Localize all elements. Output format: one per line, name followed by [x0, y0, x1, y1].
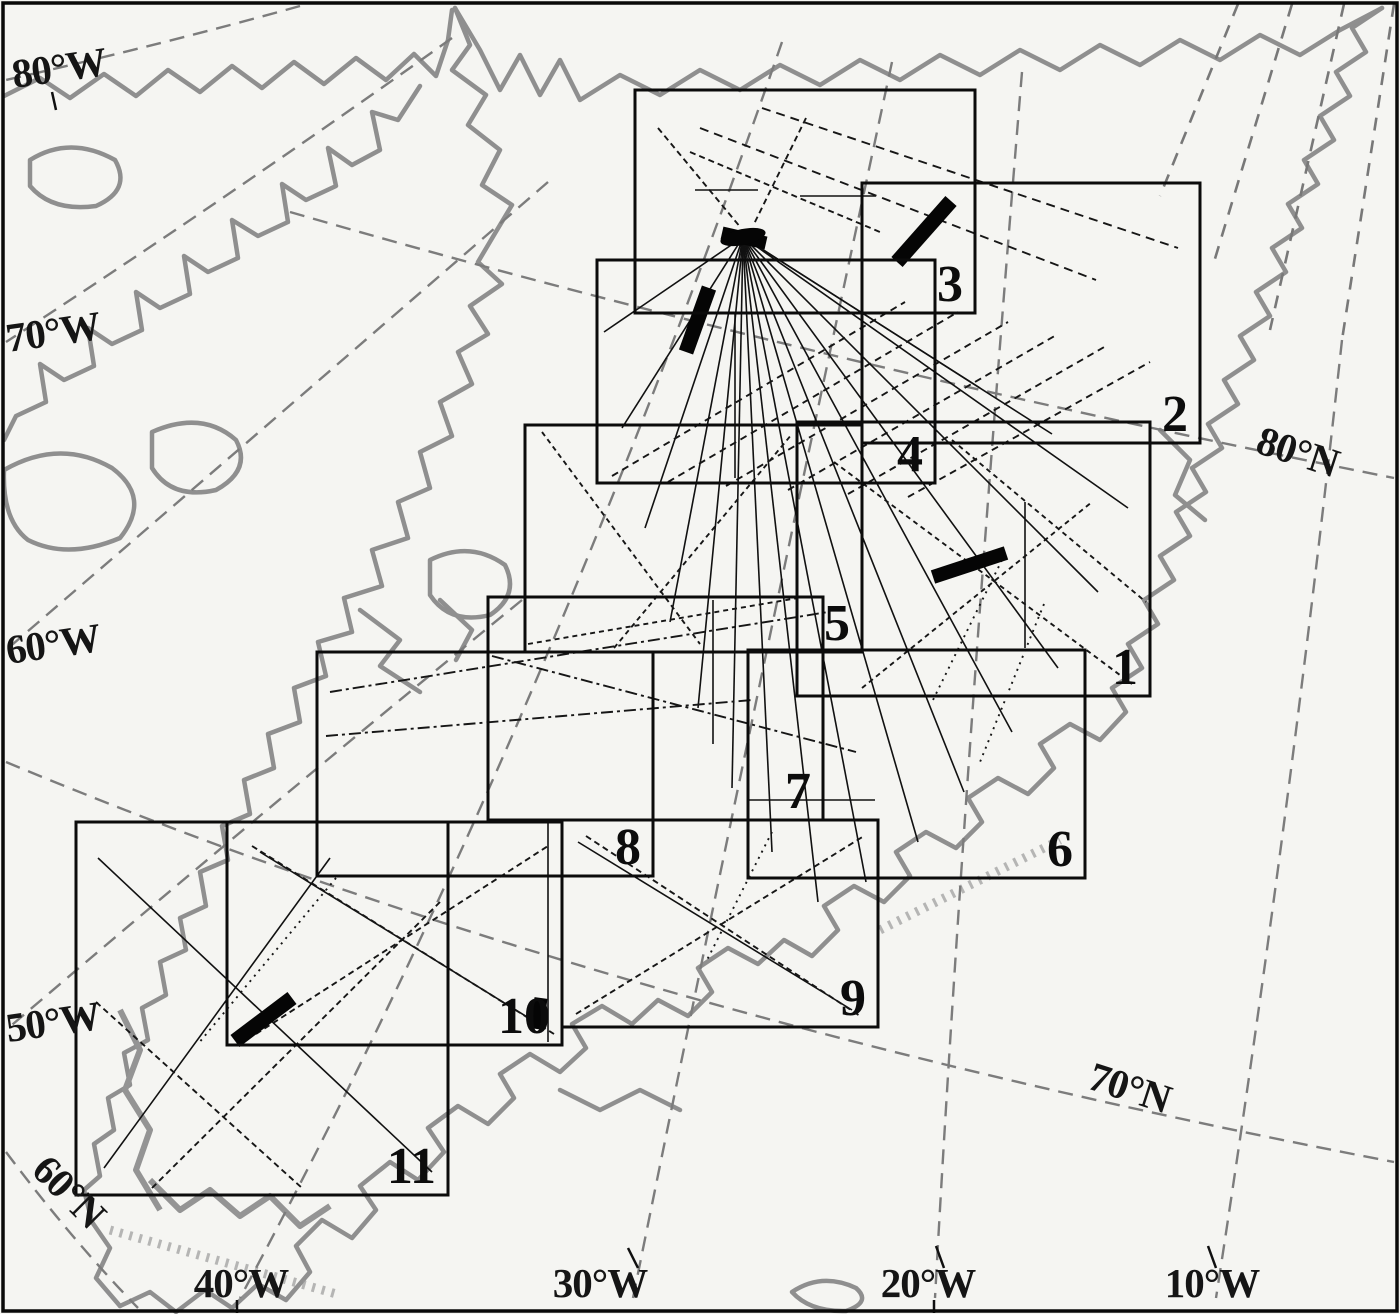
- canada-nares-coast: [4, 86, 420, 440]
- survey-line: [104, 858, 330, 1168]
- parallel-80n: [290, 212, 1394, 478]
- coastline-layer: [4, 8, 1382, 1312]
- region-label-10: 10: [498, 988, 550, 1045]
- coast-speckle-band: [880, 840, 1060, 930]
- coast-texture: [560, 1090, 680, 1110]
- greenland-east-coast: [120, 8, 1382, 1312]
- survey-track-dashed: [658, 128, 741, 228]
- survey-track-dashed: [614, 434, 792, 648]
- small-islet: [792, 1281, 862, 1311]
- region-label-11: 11: [387, 1138, 436, 1195]
- flight-line: [604, 237, 743, 332]
- meridian-40w: [240, 42, 782, 1298]
- region-label-5: 5: [824, 595, 850, 652]
- survey-track-dashed: [492, 656, 856, 752]
- canada-island-outline-2: [152, 423, 241, 493]
- survey-track-dashed: [980, 604, 1044, 762]
- coordinate-label: 80°W: [9, 38, 110, 97]
- flight-line: [743, 237, 964, 792]
- survey-track-dashed: [726, 322, 1008, 486]
- canada-island-outline-3: [30, 148, 120, 208]
- thick-bar-marker: [897, 201, 951, 262]
- coast-texture: [430, 551, 510, 617]
- region-label-9: 9: [840, 970, 866, 1027]
- region-label-7: 7: [785, 763, 811, 820]
- coast-texture: [150, 1180, 330, 1226]
- region-label-6: 6: [1047, 821, 1073, 878]
- greenland-north-coast: [455, 8, 1382, 100]
- survey-track-dashed: [762, 108, 1178, 248]
- greenland-survey-map-figure: 123456789101180°W70°W60°W50°W60°N80°N70°…: [0, 0, 1400, 1314]
- coordinate-label: 40°W: [194, 1260, 289, 1306]
- region-label-2: 2: [1162, 386, 1188, 443]
- graticule-layer: [6, 4, 1394, 1308]
- region-label-8: 8: [615, 819, 641, 876]
- border-tick: [52, 92, 56, 110]
- region-box-8: [317, 652, 653, 876]
- flight-line: [732, 237, 743, 788]
- map-border: [3, 3, 1397, 1311]
- coordinate-label: 80°N: [1251, 417, 1345, 487]
- region-label-4: 4: [897, 426, 923, 483]
- coordinate-label: 70°W: [3, 302, 104, 361]
- coordinate-label: 10°W: [1165, 1260, 1260, 1306]
- corner-meridian: [1160, 4, 1238, 196]
- survey-data-layer: 123456789101180°W70°W60°W50°W60°N80°N70°…: [3, 38, 1346, 1313]
- region-box-5: [525, 425, 862, 652]
- meridian-60w: [6, 182, 548, 650]
- canada-island-outline: [4, 453, 134, 549]
- flight-line: [743, 237, 918, 842]
- survey-track-dashed: [690, 152, 880, 232]
- region-label-1: 1: [1112, 639, 1138, 696]
- map-canvas: 123456789101180°W70°W60°W50°W60°N80°N70°…: [0, 0, 1400, 1314]
- survey-track-dashed: [932, 560, 1002, 702]
- survey-track-dashed: [754, 118, 806, 224]
- coordinate-label: 30°W: [553, 1260, 648, 1306]
- coordinate-label: 70°N: [1083, 1053, 1177, 1123]
- thick-bar-marker: [235, 998, 292, 1041]
- coordinate-label: 20°W: [881, 1260, 976, 1306]
- corner-meridian: [1342, 4, 1394, 340]
- region-label-3: 3: [937, 256, 963, 313]
- coordinate-label: 60°W: [3, 614, 104, 673]
- coordinate-label: 50°W: [3, 992, 104, 1051]
- survey-track-dashed: [326, 700, 752, 736]
- coordinate-label: 60°N: [24, 1146, 116, 1238]
